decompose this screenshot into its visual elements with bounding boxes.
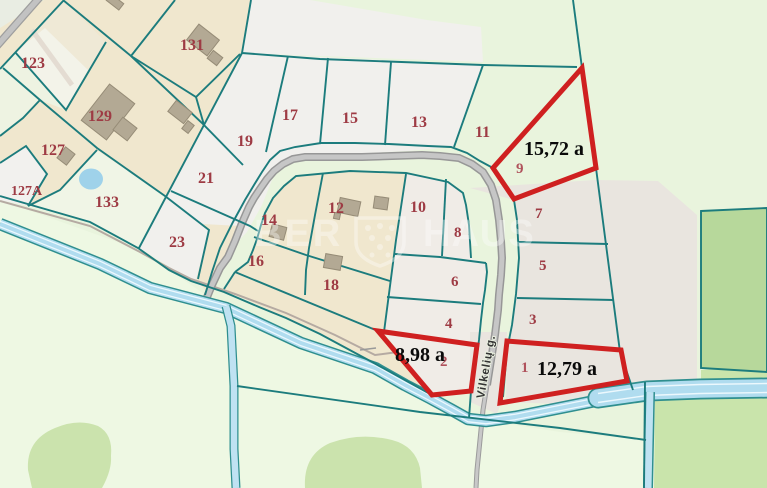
svg-text:9: 9 (516, 161, 524, 177)
svg-text:15: 15 (342, 110, 358, 127)
svg-text:133: 133 (95, 194, 119, 211)
svg-text:127: 127 (41, 142, 65, 159)
svg-text:19: 19 (237, 133, 253, 150)
svg-text:10: 10 (410, 199, 426, 216)
svg-text:127A: 127A (11, 184, 43, 199)
svg-text:12: 12 (328, 200, 344, 217)
svg-text:129: 129 (88, 108, 112, 125)
svg-text:HAUS: HAUS (423, 213, 535, 255)
svg-text:3: 3 (529, 312, 537, 328)
svg-text:14: 14 (261, 212, 277, 229)
svg-text:8,98 a: 8,98 a (395, 344, 445, 366)
svg-text:11: 11 (475, 124, 490, 141)
svg-text:5: 5 (539, 258, 547, 274)
svg-text:131: 131 (180, 37, 204, 54)
svg-text:13: 13 (411, 114, 427, 131)
svg-text:6: 6 (451, 274, 459, 290)
svg-text:21: 21 (198, 170, 214, 187)
svg-text:12,79 a: 12,79 a (537, 358, 597, 380)
svg-text:15,72 a: 15,72 a (524, 138, 584, 160)
svg-text:4: 4 (445, 316, 453, 332)
svg-text:7: 7 (535, 206, 543, 222)
svg-text:1: 1 (521, 360, 529, 376)
svg-text:8: 8 (454, 225, 462, 241)
svg-text:18: 18 (323, 277, 339, 294)
svg-text:123: 123 (21, 55, 45, 72)
svg-text:23: 23 (169, 234, 185, 251)
svg-text:16: 16 (248, 253, 264, 270)
svg-text:17: 17 (282, 107, 298, 124)
